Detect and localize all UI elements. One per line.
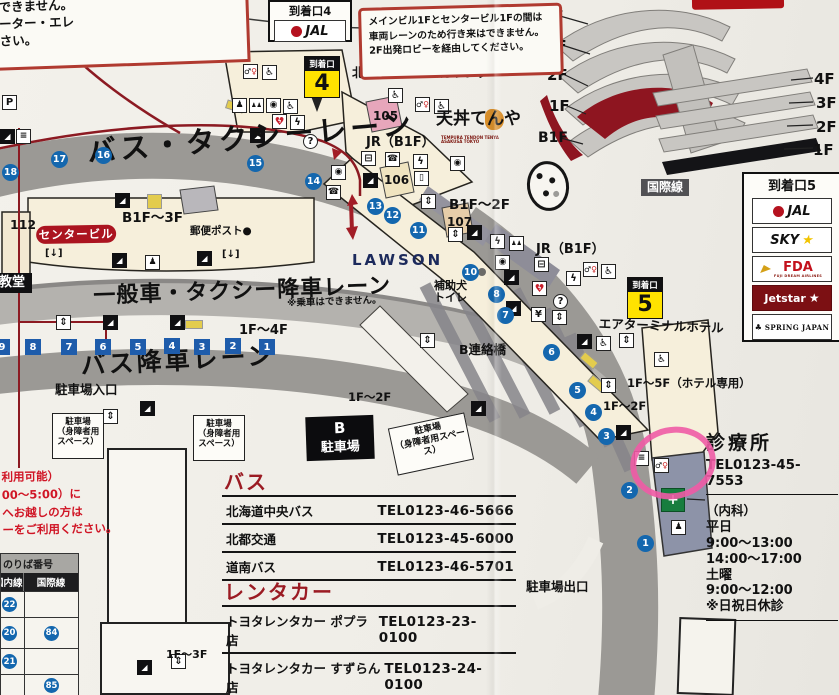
rental-row: トヨタレンタカー すずらん店TEL0123-24-0100 [222, 652, 516, 695]
stop-circle-4: 4 [585, 404, 602, 421]
gate4-airline-panel: 到着口4 JAL [268, 0, 352, 42]
rental-row-name: トヨタレンタカー ポプラ店 [226, 611, 379, 649]
jal-logo: JAL [752, 198, 832, 224]
mobile-icon: ☎ [385, 152, 400, 167]
clinic-info-card: 診療所 TEL0123-45-7553 （内科） 平日9:00〜13:0014:… [706, 428, 838, 626]
bus-row-tel: TEL0123-46-5701 [377, 559, 514, 575]
shoe-icon: ◢ [197, 251, 212, 266]
road-hatch [185, 320, 203, 329]
wheelchair-icon: ♿ [654, 352, 669, 367]
floor-right-4f: 4F [814, 71, 835, 87]
photo-icon: ◉ [331, 165, 346, 180]
jr-b1f-label-1: JR（B1F） [366, 136, 435, 150]
postbox-label: 郵便ポスト● [190, 226, 252, 237]
spring-logo: ♣SPRING JAPAN [752, 314, 832, 340]
floors-1f-4f-label: 1F〜4F [239, 324, 288, 338]
jetstar-star-icon: ★ [809, 291, 820, 305]
bus-heading: バス [222, 466, 516, 495]
rental-row-name: トヨタレンタカー すずらん店 [226, 658, 384, 695]
stand-table-row: 85 [1, 674, 78, 695]
charging-icon: ϟ [490, 234, 505, 249]
elevator-icon: ⇕ [103, 409, 118, 424]
stop-circle-1: 1 [637, 535, 654, 552]
stop-square-7: 7 [61, 339, 77, 355]
parking-exit-label: 駐車場出口 [526, 580, 589, 594]
wheelchair-icon: ♿ [596, 336, 611, 351]
bus-row-tel: TEL0123-46-5666 [377, 503, 514, 519]
escalator-icon: ◢ [115, 193, 130, 208]
stop-circle-8: 8 [488, 286, 505, 303]
floor-right-2f: 2F [816, 119, 837, 135]
elevator-icon: ⇕ [619, 333, 634, 348]
lawson-label: LAWSON [352, 252, 443, 268]
ticket-machine-icon: ⇕ [421, 194, 436, 209]
stop-circle-15: 15 [247, 155, 264, 172]
wheelchair-icon: ♿ [283, 99, 298, 114]
stop-circle-2: 2 [621, 482, 638, 499]
stop-square-9: 9 [0, 339, 10, 355]
vending-icon: ♟ [671, 520, 686, 535]
stand-112-label: 112 [10, 218, 36, 232]
night-use-note: 利用可能） 00〜5:00）に へお越しの方は ーをご利用ください。 [1, 467, 117, 540]
parking-car-icon: P [2, 95, 17, 110]
stand-circle-85: 85 [44, 678, 59, 693]
clinic-hours-line: 9:00〜12:00 [706, 583, 838, 599]
bus-phone-table: バス 北海道中央バスTEL0123-46-5666北都交通TEL0123-45-… [222, 466, 516, 581]
sim-card-icon: ▯ [414, 171, 429, 186]
gate4-panel-title: 到着口4 [270, 2, 350, 20]
stop-circle-11: 11 [410, 222, 427, 239]
stand-circle-20: 20 [2, 626, 17, 641]
jal-roundel-icon [773, 206, 784, 217]
yellow-service-box [147, 194, 162, 209]
photo-icon: ◉ [266, 98, 281, 113]
bottom-right-outline [677, 617, 737, 695]
toilet-icon: ♂♀ [243, 64, 258, 79]
wheelchair-icon: ♿ [262, 65, 277, 80]
down-arrow-mark-1: [↓] [45, 249, 63, 260]
stand-circle-84: 84 [44, 626, 59, 641]
floor-right-3f: 3F [816, 95, 837, 111]
rental-row-tel: TEL0123-23-0100 [379, 614, 514, 646]
stop-square-6: 6 [95, 339, 111, 355]
room-106-label: 106 [384, 174, 409, 187]
escalator-icon: ◢ [170, 315, 185, 330]
floor-left-1f: 1F [549, 98, 570, 114]
stop-square-1: 1 [259, 339, 275, 355]
clinic-hours-line: 9:00〜13:00 [706, 536, 838, 552]
floors-b1f-2f-label: B1F〜2F [449, 198, 510, 213]
wheelchair-icon: ♿ [388, 88, 403, 103]
clinic-hours-line: 平日 [706, 520, 838, 536]
jetstar-logo: Jetstar★ [752, 285, 832, 311]
clinic-dept: （内科） [706, 500, 838, 519]
parking-disabled-right: 駐車場 （身障者用 スペース） [193, 415, 245, 461]
b-parking-box: B 駐車場 [305, 415, 374, 461]
aed-icon: ♥ϟ [532, 281, 547, 296]
floors-1f-2f-center-label: 1F〜2F [348, 391, 391, 403]
stand-table-row: 22 [1, 591, 78, 617]
mobile-icon: ☎ [326, 185, 341, 200]
rental-phone-table: レンタカー トヨタレンタカー ポプラ店TEL0123-23-0100トヨタレンタ… [222, 576, 516, 695]
stand-circle-21: 21 [2, 654, 17, 669]
bus-row-name: 道南バス [226, 557, 276, 576]
stop-circle-18: 18 [2, 164, 19, 181]
charging-icon: ϟ [566, 271, 581, 286]
hotel-floors-label: 1F〜5F（ホテル専用） [627, 377, 751, 389]
clinic-hours-line: 土曜 [706, 568, 838, 584]
gate5-airline-panel: 到着口5 JALSKY★FDAFUJI DREAM AIRLINESJetsta… [742, 172, 839, 342]
floor-left-b1f: B1F [538, 131, 568, 146]
stop-circle-16: 16 [95, 147, 112, 164]
family-icon: ♟♟ [249, 98, 264, 113]
escalator-icon: ◢ [137, 660, 152, 675]
tenya-logo-label: 天丼てんや [436, 110, 521, 128]
clinic-tel: TEL0123-45-7553 [706, 457, 838, 489]
stand-circle-22: 22 [2, 597, 17, 612]
stand-col-international: 国際線 [24, 573, 78, 591]
parking-disabled-left: 駐車場 （身障者用 スペース） [52, 413, 104, 459]
arrival-gate5-badge: 到着口 5 [627, 277, 663, 319]
floors-1f-3f-label: 1F〜3F [166, 649, 207, 661]
escalator-icon: ◢ [616, 425, 631, 440]
bus-row-tel: TEL0123-45-6000 [377, 531, 514, 547]
stairs-icon: ≡ [16, 129, 31, 144]
stop-circle-13: 13 [367, 198, 384, 215]
wheelchair-icon: ♿ [601, 264, 616, 279]
down-arrow-mark-2: [↓] [222, 250, 240, 261]
gate5-panel-title: 到着口5 [744, 174, 839, 195]
escalator-icon: ◢ [0, 129, 15, 144]
elderly-icon: ♟ [232, 98, 247, 113]
stop-square-5: 5 [130, 339, 146, 355]
ramp-icon: ◢ [140, 401, 155, 416]
floor-right-1f: 1F [813, 142, 834, 158]
tenya-logo-sub: TEMPURA TENDON TENYA ASAKUSA TOKYO [441, 136, 499, 145]
train-icon: ⊟ [534, 257, 549, 272]
center-building-badge: センタービル [36, 225, 116, 244]
rental-row-tel: TEL0123-24-0100 [384, 661, 514, 693]
stand-table-row: 2084 [1, 617, 78, 648]
bottom-left-building [100, 622, 230, 695]
elevator-icon: ⇕ [552, 310, 567, 325]
escalator-icon: ◢ [363, 173, 378, 188]
bus-row-name: 北都交通 [226, 529, 276, 548]
bus-row: 北海道中央バスTEL0123-46-5666 [222, 495, 516, 523]
train-icon: ⊟ [361, 151, 376, 166]
gray-dot [478, 268, 486, 276]
bus-row-name: 北海道中央バス [226, 501, 314, 520]
info-counter-icon: ◉ [450, 156, 465, 171]
stand-col-domestic: 国内線 [1, 573, 24, 591]
rental-row: トヨタレンタカー ポプラ店TEL0123-23-0100 [222, 605, 516, 652]
stop-circle-6: 6 [543, 344, 560, 361]
elevator-icon: ⇕ [420, 333, 435, 348]
clinic-title: 診療所 [706, 428, 838, 455]
rental-heading: レンタカー [222, 576, 516, 605]
cutoff-red-badge [692, 0, 784, 10]
jal-roundel-icon [291, 26, 302, 37]
top-left-note: 来ができません。 カレーター・エレ ください。 [0, 0, 251, 72]
exchange-icon: ¥ [531, 307, 546, 322]
bus-row: 北都交通TEL0123-45-6000 [222, 523, 516, 551]
elevator-icon: ⇕ [56, 315, 71, 330]
stop-square-4: 4 [164, 338, 180, 354]
room-105-label: 105 [373, 110, 398, 123]
stop-square-2: 2 [225, 338, 241, 354]
clinic-hours-line: ※日祝日休診 [706, 599, 838, 615]
stop-circle-17: 17 [51, 151, 68, 168]
stop-circle-7: 7 [497, 307, 514, 324]
b-bridge-label: B連絡橋 [459, 343, 506, 357]
stop-circle-10: 10 [462, 264, 479, 281]
room-107-label: 107 [447, 216, 472, 229]
photo-icon: ◉ [495, 255, 510, 270]
stop-circle-5: 5 [569, 382, 586, 399]
arrival-gate4-badge: 到着口 4 [304, 56, 340, 98]
airport-terminal-map: 来ができません。 カレーター・エレ ください。 メインビル1Fとセンタービル1F… [0, 0, 839, 695]
stop-circle-14: 14 [305, 173, 322, 190]
parking-entrance-label: 駐車場入口 [55, 383, 118, 397]
intl-line-label: 国際線 [641, 179, 689, 196]
elevator-icon: ⇕ [448, 227, 463, 242]
stop-square-3: 3 [194, 339, 210, 355]
toilet-icon: ♂♀ [583, 262, 598, 277]
jr-b1f-label-2: JR（B1F） [536, 243, 605, 257]
elevator-icon: ⇕ [601, 378, 616, 393]
clinic-hours-line: 14:00〜17:00 [706, 552, 838, 568]
stand-number-table: のりば番号 国内線 国際線 222084218586 [0, 553, 79, 695]
ramp-icon: ◢ [471, 401, 486, 416]
escalator-icon: ◢ [103, 315, 118, 330]
person-icon: ♟ [145, 255, 160, 270]
stop-circle-12: 12 [384, 207, 401, 224]
escalator-icon: ◢ [504, 270, 519, 285]
vehicle-lane-notice: メインビル1Fとセンタービル1Fの間は 車両レーンのため行き来はできません。 2… [358, 3, 564, 80]
jal-logo: JAL [274, 20, 346, 42]
fda-swoosh-icon [760, 265, 773, 273]
sky-star-icon: ★ [800, 233, 815, 248]
spring-mark-icon: ♣ [755, 323, 762, 332]
fda-logo: FDAFUJI DREAM AIRLINES [752, 256, 832, 282]
toilet-icon: ♂♀ [415, 97, 430, 112]
slope-icon: ◢ [577, 334, 592, 349]
jal-logo-text: JAL [305, 24, 328, 39]
service-icon: ♟♟ [509, 236, 524, 251]
sky-logo: SKY★ [752, 227, 832, 253]
stand-table-title: のりば番号 [1, 554, 78, 573]
charging-icon: ϟ [413, 154, 428, 169]
stop-square-8: 8 [25, 339, 41, 355]
stand-table-row: 21 [1, 648, 78, 674]
floors-b1f-3f-label: B1F〜3F [122, 211, 183, 226]
shoe-icon: ◢ [112, 253, 127, 268]
info-icon: ? [553, 294, 568, 309]
floors-1f-2f-hotel-label: 1F〜2F [603, 400, 646, 412]
stop-circle-3: 3 [598, 428, 615, 445]
chapel-label: 教堂 [0, 273, 32, 293]
assist-dog-toilet-label: 補助犬 トイレ [434, 280, 467, 304]
